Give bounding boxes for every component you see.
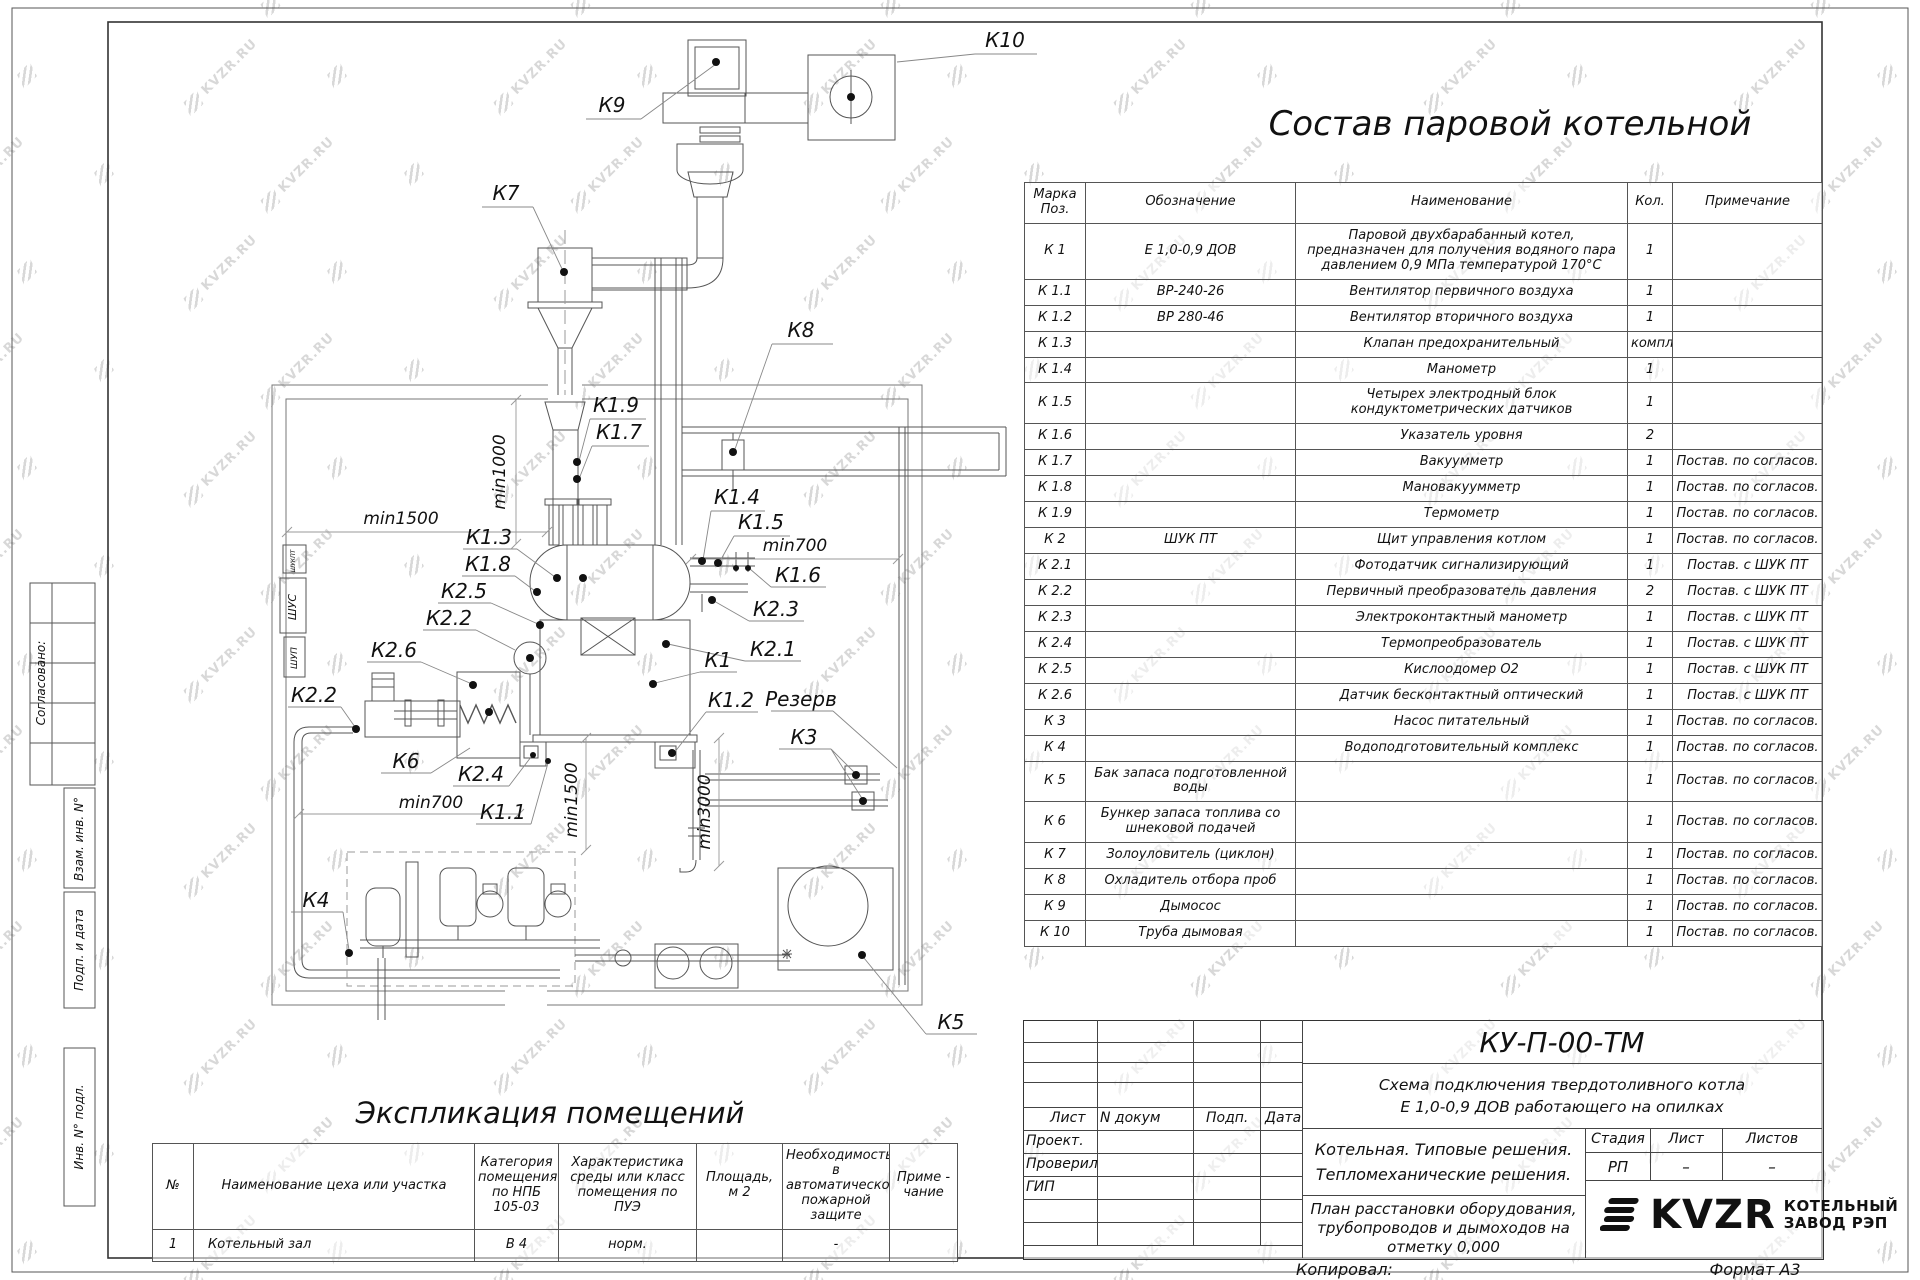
cell-name: Мановакуумметр	[1296, 476, 1628, 502]
cell-note: Постав. с ШУК ПТ	[1673, 631, 1823, 657]
doc-code: КУ-П-00-ТМ	[1302, 1026, 1822, 1059]
label-k1: К1	[705, 648, 732, 672]
cell-qty: 2	[1628, 424, 1673, 450]
col-name: Наименование	[1296, 183, 1628, 224]
col-mark: Марка Поз.	[1025, 183, 1086, 224]
cell-note	[1673, 357, 1823, 383]
cell-qty: 1	[1628, 631, 1673, 657]
cell-qty: 1	[1628, 383, 1673, 424]
parts-table-row: К 6 Бункер запаса топлива со шнековой по…	[1025, 802, 1823, 843]
company-name: КОТЕЛЬНЫЙЗАВОД РЭП	[1784, 1198, 1899, 1233]
cell-code	[1086, 383, 1296, 424]
scheme-title-line2: Е 1,0-0,9 ДОВ работающего на опилках	[1302, 1098, 1822, 1116]
explication-title: Экспликация помещений	[300, 1096, 800, 1130]
cell-qty: 1	[1628, 279, 1673, 305]
cell-mark: К 1.7	[1025, 450, 1086, 476]
cell-qty: 1	[1628, 605, 1673, 631]
cell-code: Охладитель отбора проб	[1086, 869, 1296, 895]
role-design: Проект.	[1026, 1133, 1084, 1149]
cell-name: Термопреобразователь	[1296, 631, 1628, 657]
parts-table-header: Марка Поз. Обозначение Наименование Кол.…	[1025, 183, 1823, 224]
drawing-sheet: KVZR.RUKVZR.RUKVZR.RUKVZR.RUKVZR.RUKVZR.…	[0, 0, 1920, 1280]
label-min700-top: min700	[763, 536, 828, 556]
cell-mark: К 8	[1025, 869, 1086, 895]
cell-qty: 1	[1628, 709, 1673, 735]
label-k4: К4	[303, 888, 330, 912]
cell-mark: К 1	[1025, 223, 1086, 279]
label-k7: К7	[493, 181, 520, 205]
cell-mark: К 2.3	[1025, 605, 1086, 631]
panel-label-shup: ШУП	[290, 647, 300, 669]
stage-value: РП	[1586, 1158, 1650, 1176]
stamp-col-date: Дата	[1265, 1110, 1301, 1126]
label-k1-2: К1.2	[708, 688, 754, 712]
col-code: Обозначение	[1086, 183, 1296, 224]
cell-num: 1	[153, 1229, 194, 1261]
cell-note: Постав. по согласов.	[1673, 502, 1823, 528]
cell-code	[1086, 631, 1296, 657]
panel-label-shus: ШУС	[286, 594, 299, 620]
bottom-pipeline	[575, 944, 790, 988]
cell-mark: К 3	[1025, 709, 1086, 735]
cell-name	[1296, 921, 1628, 947]
parts-table-row: К 1.9 Термометр 1 Постав. по согласов.	[1025, 502, 1823, 528]
parts-table-row: К 8 Охладитель отбора проб 1 Постав. по …	[1025, 869, 1823, 895]
cell-note	[1673, 383, 1823, 424]
role-check: Проверил	[1026, 1156, 1098, 1172]
cell-code	[1086, 709, 1296, 735]
cell-mark: К 1.1	[1025, 279, 1086, 305]
cell-environment: норм.	[559, 1229, 697, 1261]
col-category: Категория помещения по НПБ 105-03	[475, 1144, 559, 1230]
cell-name: Насос питательный	[1296, 709, 1628, 735]
cell-code	[1086, 735, 1296, 761]
cell-code: Золоуловитель (циклон)	[1086, 843, 1296, 869]
object-line1: План расстановки оборудования,	[1302, 1200, 1585, 1218]
label-k1-3: К1.3	[466, 525, 512, 549]
cell-name: Первичный преобразователь давления	[1296, 579, 1628, 605]
cell-note	[1673, 279, 1823, 305]
label-k1-5: К1.5	[738, 510, 784, 534]
cell-qty: 1	[1628, 735, 1673, 761]
cell-qty: 1	[1628, 895, 1673, 921]
label-k1-8: К1.8	[465, 552, 511, 576]
cell-note: Постав. с ШУК ПТ	[1673, 605, 1823, 631]
cell-fire: -	[783, 1229, 890, 1261]
cell-shop-name: Котельный зал	[194, 1229, 475, 1261]
cell-note: Постав. с ШУК ПТ	[1673, 657, 1823, 683]
cell-mark: К 2.4	[1025, 631, 1086, 657]
label-k6: К6	[393, 749, 420, 773]
cell-note	[1673, 331, 1823, 357]
cell-note: Постав. по согласов.	[1673, 709, 1823, 735]
cell-mark: К 1.2	[1025, 305, 1086, 331]
cell-mark: К 2	[1025, 528, 1086, 554]
cell-expl-note	[890, 1229, 958, 1261]
cell-area	[697, 1229, 783, 1261]
col-note: Примечание	[1673, 183, 1823, 224]
cell-code	[1086, 476, 1296, 502]
sheets-value: –	[1722, 1158, 1822, 1176]
label-k1-1: К1.1	[480, 800, 526, 824]
parts-table-row: К 1.2 ВР 280-46 Вентилятор вторичного во…	[1025, 305, 1823, 331]
parts-table-row: К 2.2 Первичный преобразователь давления…	[1025, 579, 1823, 605]
explication-header: № Наименование цеха или участка Категори…	[153, 1144, 958, 1230]
col-shop-name: Наименование цеха или участка	[194, 1144, 475, 1230]
parts-table-row: К 7 Золоуловитель (циклон) 1 Постав. по …	[1025, 843, 1823, 869]
cell-mark: К 9	[1025, 895, 1086, 921]
stamp-col-sign: Подп.	[1206, 1110, 1248, 1126]
parts-table-row: К 1.8 Мановакуумметр 1 Постав. по соглас…	[1025, 476, 1823, 502]
cell-mark: К 1.6	[1025, 424, 1086, 450]
cell-name	[1296, 895, 1628, 921]
cell-code	[1086, 357, 1296, 383]
cell-name	[1296, 761, 1628, 802]
cell-qty: 1	[1628, 502, 1673, 528]
cell-qty: компл.	[1628, 331, 1673, 357]
label-k1-6: К1.6	[775, 563, 821, 587]
stamp-col-sheet: Лист	[1050, 1110, 1085, 1126]
stamp-col-doc: N докум	[1100, 1110, 1160, 1126]
cell-name: Кислоодомер О2	[1296, 657, 1628, 683]
cell-name	[1296, 843, 1628, 869]
panel-label-shukpt: ШУКПТ	[290, 548, 297, 572]
label-min3000: min3000	[695, 774, 715, 849]
parts-table-row: К 2 ШУК ПТ Щит управления котлом 1 Поста…	[1025, 528, 1823, 554]
sample-cooler-k8	[722, 433, 744, 490]
cell-name: Термометр	[1296, 502, 1628, 528]
cell-name: Указатель уровня	[1296, 424, 1628, 450]
label-k2-5: К2.5	[441, 579, 487, 603]
parts-table-row: К 1.1 ВР-240-26 Вентилятор первичного во…	[1025, 279, 1823, 305]
label-k3: К3	[791, 725, 818, 749]
cell-qty: 1	[1628, 450, 1673, 476]
parts-table-row: К 1.5 Четырех электродный блок кондуктом…	[1025, 383, 1823, 424]
label-k9: К9	[599, 93, 626, 117]
cell-name: Щит управления котлом	[1296, 528, 1628, 554]
cell-note	[1673, 424, 1823, 450]
cell-code	[1086, 554, 1296, 580]
cell-code: ШУК ПТ	[1086, 528, 1296, 554]
flue-duct	[545, 402, 585, 545]
cell-code: ВР-240-26	[1086, 279, 1296, 305]
cell-note: Постав. по согласов.	[1673, 843, 1823, 869]
copied-label: Копировал:	[1296, 1260, 1393, 1279]
col-expl-note: Приме - чание	[890, 1144, 958, 1230]
cell-note: Постав. по согласов.	[1673, 802, 1823, 843]
cell-note	[1673, 223, 1823, 279]
cell-name: Вакуумметр	[1296, 450, 1628, 476]
sheet-label: Лист	[1650, 1131, 1722, 1147]
col-num: №	[153, 1144, 194, 1230]
explication-table: № Наименование цеха или участка Категори…	[152, 1143, 957, 1262]
parts-table-row: К 2.4 Термопреобразователь 1 Постав. с Ш…	[1025, 631, 1823, 657]
parts-table-row: К 2.1 Фотодатчик сигнализирующий 1 Поста…	[1025, 554, 1823, 580]
label-k1-7: К1.7	[596, 420, 642, 444]
label-k8: К8	[788, 318, 815, 342]
parts-table-row: К 3 Насос питательный 1 Постав. по согла…	[1025, 709, 1823, 735]
cell-category: В 4	[475, 1229, 559, 1261]
cell-name: Фотодатчик сигнализирующий	[1296, 554, 1628, 580]
cell-mark: К 2.5	[1025, 657, 1086, 683]
cell-note: Постав. по согласов.	[1673, 735, 1823, 761]
margin-replace-inv: Взам. инв. N°	[72, 784, 86, 894]
cell-code: Труба дымовая	[1086, 921, 1296, 947]
parts-table-row: К 10 Труба дымовая 1 Постав. по согласов…	[1025, 921, 1823, 947]
cell-mark: К 1.3	[1025, 331, 1086, 357]
label-k2-4: К2.4	[458, 762, 504, 786]
cell-name: Манометр	[1296, 357, 1628, 383]
scheme-title-line1: Схема подключения твердотоливного котла	[1302, 1076, 1822, 1094]
cell-mark: К 5	[1025, 761, 1086, 802]
cell-code: ВР 280-46	[1086, 305, 1296, 331]
cell-note: Постав. по согласов.	[1673, 869, 1823, 895]
cell-mark: К 1.8	[1025, 476, 1086, 502]
kvzr-logo-text: KVZR	[1650, 1192, 1776, 1238]
cell-name	[1296, 802, 1628, 843]
parts-table-row: К 1.4 Манометр 1	[1025, 357, 1823, 383]
cell-name: Вентилятор первичного воздуха	[1296, 279, 1628, 305]
label-k2-2: К2.2	[426, 606, 472, 630]
cell-name	[1296, 869, 1628, 895]
label-min1000: min1000	[490, 434, 510, 509]
stage-label: Стадия	[1586, 1131, 1650, 1147]
parts-table-row: К 1.6 Указатель уровня 2	[1025, 424, 1823, 450]
cell-mark: К 4	[1025, 735, 1086, 761]
cell-mark: К 2.1	[1025, 554, 1086, 580]
parts-table-row: К 1.3 Клапан предохранительный компл.	[1025, 331, 1823, 357]
cell-code	[1086, 579, 1296, 605]
col-qty: Кол.	[1628, 183, 1673, 224]
cell-note: Постав. по согласов.	[1673, 895, 1823, 921]
cell-mark: К 10	[1025, 921, 1086, 947]
cell-code	[1086, 502, 1296, 528]
cell-mark: К 6	[1025, 802, 1086, 843]
section-line1: Котельная. Типовые решения.	[1302, 1140, 1585, 1159]
cell-qty: 1	[1628, 921, 1673, 947]
leader-lines	[288, 54, 1037, 1034]
cell-qty: 1	[1628, 657, 1673, 683]
parts-table-row: К 4 Водоподготовительный комплекс 1 Пост…	[1025, 735, 1823, 761]
cell-qty: 1	[1628, 843, 1673, 869]
parts-table-row: К 2.6 Датчик бесконтактный оптический 1 …	[1025, 683, 1823, 709]
kvzr-logo-icon	[1600, 1195, 1642, 1235]
sheets-label: Листов	[1722, 1131, 1822, 1147]
parts-table-row: К 2.5 Кислоодомер О2 1 Постав. с ШУК ПТ	[1025, 657, 1823, 683]
cell-code	[1086, 683, 1296, 709]
cyclone-k7	[528, 230, 687, 395]
cell-mark: К 1.5	[1025, 383, 1086, 424]
sheet-value: –	[1650, 1158, 1722, 1176]
label-min1500-vert: min1500	[562, 762, 582, 837]
parts-table-row: К 2.3 Электроконтактный манометр 1 Поста…	[1025, 605, 1823, 631]
cell-mark: К 7	[1025, 843, 1086, 869]
cell-code	[1086, 331, 1296, 357]
cell-qty: 1	[1628, 802, 1673, 843]
cell-qty: 1	[1628, 528, 1673, 554]
cell-note: Постав. по согласов.	[1673, 450, 1823, 476]
cell-name: Четырех электродный блок кондуктометриче…	[1296, 383, 1628, 424]
cell-note: Постав. по согласов.	[1673, 761, 1823, 802]
cell-qty: 1	[1628, 305, 1673, 331]
cell-mark: К 1.9	[1025, 502, 1086, 528]
water-treatment-k4	[347, 852, 600, 1020]
steam-pipes	[655, 258, 1006, 985]
cell-code	[1086, 605, 1296, 631]
label-k10: К10	[985, 28, 1025, 52]
cell-name: Электроконтактный манометр	[1296, 605, 1628, 631]
label-min1500-left: min1500	[363, 509, 438, 529]
cell-note: Постав. по согласов.	[1673, 921, 1823, 947]
parts-table-title: Состав паровой котельной	[1180, 104, 1840, 144]
label-reserve: Резерв	[765, 687, 837, 711]
col-area: Площадь, м 2	[697, 1144, 783, 1230]
margin-inv-orig: Инв. N° подл.	[72, 1072, 86, 1182]
cell-note: Постав. с ШУК ПТ	[1673, 579, 1823, 605]
cell-code: Е 1,0-0,9 ДОВ	[1086, 223, 1296, 279]
cell-note: Постав. по согласов.	[1673, 528, 1823, 554]
cell-qty: 1	[1628, 554, 1673, 580]
role-gip: ГИП	[1026, 1179, 1055, 1195]
smoke-exhauster-k9	[592, 40, 808, 288]
object-line3: отметку 0,000	[1302, 1238, 1585, 1256]
cell-qty: 2	[1628, 579, 1673, 605]
cell-qty: 1	[1628, 869, 1673, 895]
parts-table-row: К 1.7 Вакуумметр 1 Постав. по согласов.	[1025, 450, 1823, 476]
water-tank-k5	[778, 866, 893, 970]
cell-mark: К 1.4	[1025, 357, 1086, 383]
cell-code: Дымосос	[1086, 895, 1296, 921]
cell-qty: 1	[1628, 683, 1673, 709]
cell-note	[1673, 305, 1823, 331]
label-k2-2-left: К2.2	[291, 683, 337, 707]
cell-name: Клапан предохранительный	[1296, 331, 1628, 357]
object-line2: трубопроводов и дымоходов на	[1302, 1219, 1585, 1237]
cell-code: Бак запаса подготовленной воды	[1086, 761, 1296, 802]
cell-name: Вентилятор вторичного воздуха	[1296, 305, 1628, 331]
label-k5: К5	[938, 1010, 965, 1034]
kvzr-logo: KVZR КОТЕЛЬНЫЙЗАВОД РЭП	[1600, 1192, 1898, 1238]
cell-code	[1086, 657, 1296, 683]
margin-sign-date: Подп. и дата	[72, 895, 86, 1005]
cell-name: Датчик бесконтактный оптический	[1296, 683, 1628, 709]
label-k2-1: К2.1	[750, 637, 796, 661]
cell-note: Постав. с ШУК ПТ	[1673, 554, 1823, 580]
label-k2-6: К2.6	[371, 638, 417, 662]
col-fire: Необходимость в автоматической пожарной …	[783, 1144, 890, 1230]
cell-name: Паровой двухбарабанный котел, предназнач…	[1296, 223, 1628, 279]
parts-table-row: К 5 Бак запаса подготовленной воды 1 Пос…	[1025, 761, 1823, 802]
parts-table: Марка Поз. Обозначение Наименование Кол.…	[1024, 182, 1822, 947]
parts-table-row: К 9 Дымосос 1 Постав. по согласов.	[1025, 895, 1823, 921]
cell-code	[1086, 424, 1296, 450]
format-label: Формат А3	[1690, 1260, 1820, 1279]
cell-note: Постав. с ШУК ПТ	[1673, 683, 1823, 709]
label-min700-bottom: min700	[399, 793, 464, 813]
margin-approved: Согласовано:	[34, 608, 48, 758]
section-line2: Тепломеханические решения.	[1302, 1165, 1585, 1184]
cell-mark: К 2.2	[1025, 579, 1086, 605]
cell-qty: 1	[1628, 476, 1673, 502]
parts-table-row: К 1 Е 1,0-0,9 ДОВ Паровой двухбарабанный…	[1025, 223, 1823, 279]
cell-note: Постав. по согласов.	[1673, 476, 1823, 502]
cell-name: Водоподготовительный комплекс	[1296, 735, 1628, 761]
label-k2-3: К2.3	[753, 597, 799, 621]
col-environment: Характеристика среды или класс помещения…	[559, 1144, 697, 1230]
label-k1-9: К1.9	[593, 393, 639, 417]
cell-code: Бункер запаса топлива со шнековой подаче…	[1086, 802, 1296, 843]
explication-row: 1 Котельный зал В 4 норм. -	[153, 1229, 958, 1261]
cell-code	[1086, 450, 1296, 476]
label-k1-4: К1.4	[714, 485, 760, 509]
cell-qty: 1	[1628, 223, 1673, 279]
cell-mark: К 2.6	[1025, 683, 1086, 709]
cell-qty: 1	[1628, 357, 1673, 383]
cell-qty: 1	[1628, 761, 1673, 802]
